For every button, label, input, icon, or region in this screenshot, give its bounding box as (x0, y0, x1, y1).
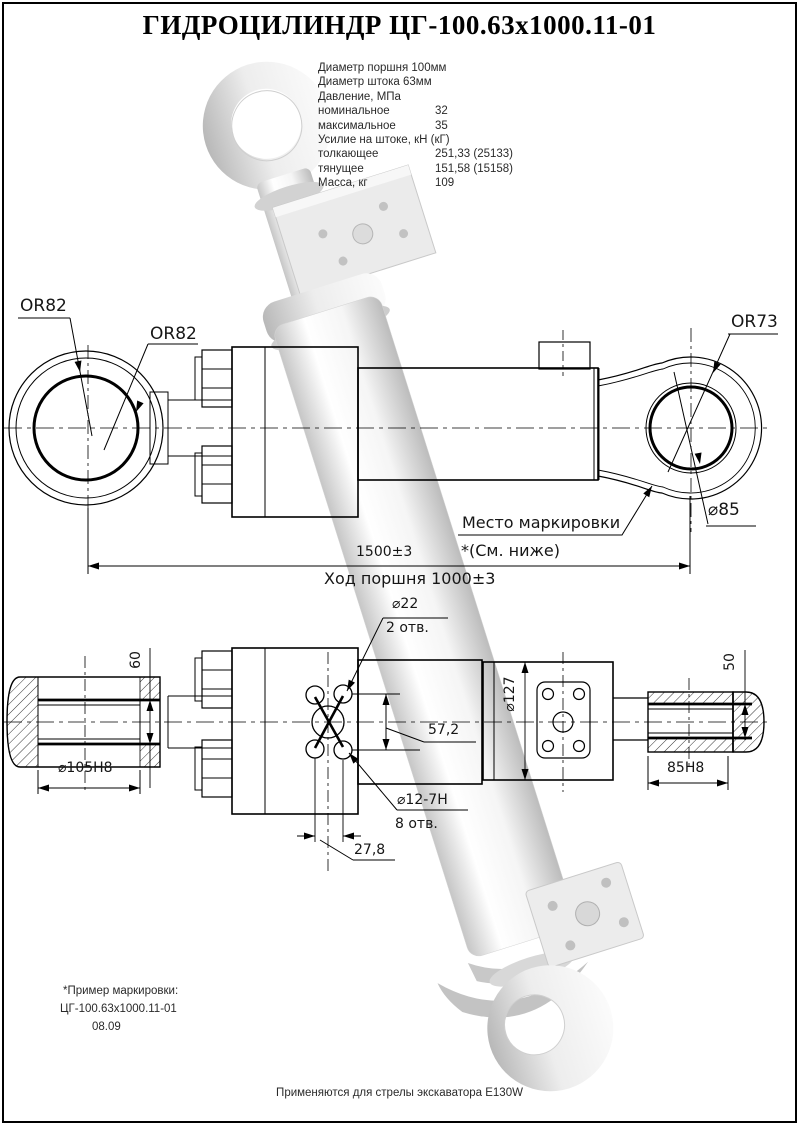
application-note: Применяются для стрелы экскаватора E130W (0, 1087, 799, 1099)
marking-place-label: Место маркировки (462, 513, 620, 532)
dim-port-count: 2 отв. (386, 620, 429, 636)
marking-example-title: *Пример маркировки: (63, 985, 178, 997)
dim-port-dia-22: ⌀22 (392, 596, 418, 612)
drawing-page: ГИДРОЦИЛИНДР ЦГ-100.63х1000.11-01 Диамет… (0, 0, 799, 1127)
marking-example-code: ЦГ-100.63х1000.11-01 (60, 1003, 177, 1015)
side-view (4, 318, 778, 574)
marking-example-date: 08.09 (92, 1021, 121, 1033)
marking-note-label: *(См. ниже) (461, 541, 560, 560)
spec-row: Масса, кг109 (318, 176, 450, 190)
dim-sphere-left-outer: OR82 (20, 296, 67, 316)
dim-hole-dia-12-7h: ⌀12-7H (397, 792, 448, 808)
spec-row: толкающее251,33 (25133) (318, 147, 450, 161)
spec-row: номинальное32 (318, 104, 450, 118)
dim-width-50: 50 (722, 647, 738, 677)
spec-row: Давление, МПа (318, 90, 450, 104)
dim-spacing-27-8: 27,8 (354, 842, 385, 858)
spec-row: Усилие на штоке, кН (кГ) (318, 133, 450, 147)
spec-row: Диаметр поршня 100мм (318, 61, 450, 75)
spec-row: Диаметр штока 63мм (318, 75, 450, 89)
dim-bore-105h8: ⌀105H8 (58, 760, 113, 776)
dim-bore-right: ⌀85 (708, 500, 740, 520)
dim-flange-dia-127: ⌀127 (502, 672, 518, 716)
spec-row: тянущее151,58 (15158) (318, 162, 450, 176)
dim-hole-count: 8 отв. (395, 816, 438, 832)
dim-width-60: 60 (128, 645, 144, 675)
dim-piston-stroke: Ход поршня 1000±3 (324, 569, 495, 588)
dim-sphere-left-inner: OR82 (150, 324, 197, 344)
dim-overall-length: 1500±3 (356, 544, 412, 560)
dim-spacing-57-2: 57,2 (428, 722, 459, 738)
dim-sphere-right: OR73 (731, 312, 778, 332)
page-title: ГИДРОЦИЛИНДР ЦГ-100.63х1000.11-01 (0, 10, 799, 41)
spec-row: максимальное35 (318, 119, 450, 133)
spec-table: Диаметр поршня 100мм Диаметр штока 63мм … (318, 61, 450, 191)
dim-bore-85h8: 85H8 (667, 760, 704, 776)
